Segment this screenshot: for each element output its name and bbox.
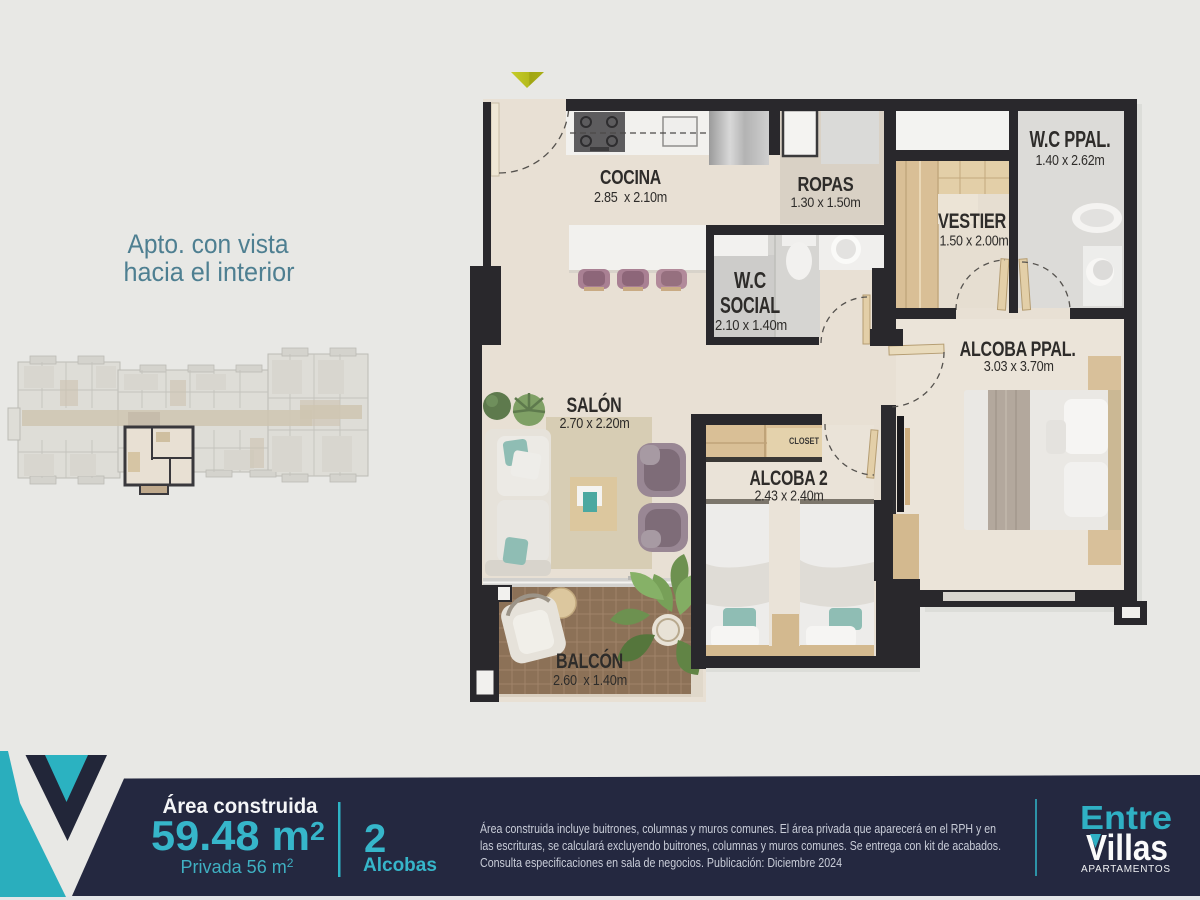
svg-text:2.10 x 1.40m: 2.10 x 1.40m [715,318,787,334]
svg-text:BALCÓN: BALCÓN [556,649,623,673]
svg-text:ALCOBA PPAL.: ALCOBA PPAL. [960,338,1076,361]
svg-text:ROPAS: ROPAS [798,174,854,196]
svg-text:APARTAMENTOS: APARTAMENTOS [1081,864,1173,875]
svg-text:Área construida incluye buitro: Área construida incluye buitrones, colum… [480,821,996,836]
svg-text:W.C: W.C [734,267,766,293]
svg-text:Alcobas: Alcobas [363,855,437,876]
svg-text:CLOSET: CLOSET [789,436,819,446]
svg-text:W.C PPAL.: W.C PPAL. [1030,126,1111,152]
svg-text:las escrituras, se calculará e: las escrituras, se calculará excluyendo … [480,839,1001,853]
svg-text:2.85 x 2.10m: 2.85 x 2.10m [594,190,667,206]
svg-text:3.03 x 3.70m: 3.03 x 3.70m [984,359,1054,375]
svg-text:Privada 56 m2: Privada 56 m2 [181,856,294,877]
svg-text:VESTIER: VESTIER [938,210,1006,233]
svg-text:2.60 x 1.40m: 2.60 x 1.40m [553,673,627,689]
svg-text:Apto. con vista: Apto. con vista [128,229,290,259]
svg-text:Villas: Villas [1086,827,1168,868]
svg-text:hacia el interior: hacia el interior [124,257,295,287]
svg-text:SOCIAL: SOCIAL [720,292,780,318]
svg-text:SALÓN: SALÓN [567,393,622,417]
svg-text:ALCOBA 2: ALCOBA 2 [750,467,828,490]
svg-text:2.70 x 2.20m: 2.70 x 2.20m [560,416,630,432]
svg-text:59.48 m2: 59.48 m2 [151,812,325,859]
svg-text:2.43 x 2.40m: 2.43 x 2.40m [755,489,824,505]
svg-text:1.50 x 2.00m: 1.50 x 2.00m [940,234,1009,250]
svg-text:1.30 x 1.50m: 1.30 x 1.50m [791,194,861,210]
svg-text:1.40 x 2.62m: 1.40 x 2.62m [1036,153,1105,169]
svg-text:Consulta especificaciones en s: Consulta especificaciones en sala de neg… [480,856,842,870]
svg-text:COCINA: COCINA [600,167,661,189]
